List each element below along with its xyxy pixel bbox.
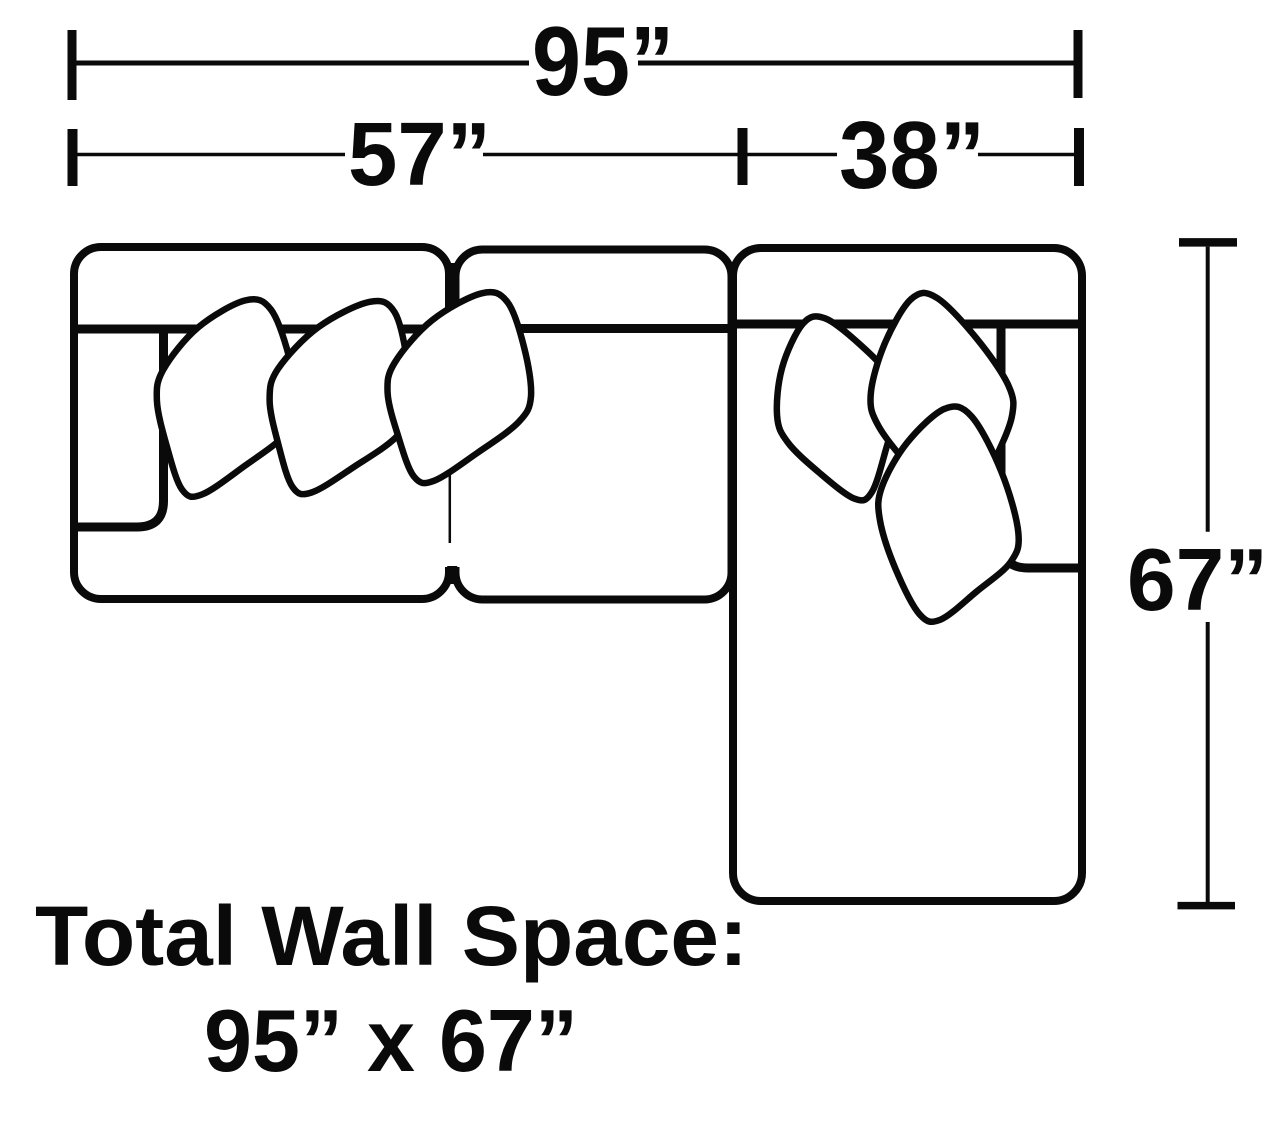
svg-text:95” x 67”: 95” x 67” [204, 991, 578, 1090]
svg-text:Total Wall Space:: Total Wall Space: [35, 888, 748, 983]
svg-text:67”: 67” [1127, 530, 1268, 629]
svg-text:38”: 38” [839, 102, 985, 209]
svg-text:57”: 57” [348, 105, 491, 205]
svg-text:95”: 95” [532, 6, 674, 116]
